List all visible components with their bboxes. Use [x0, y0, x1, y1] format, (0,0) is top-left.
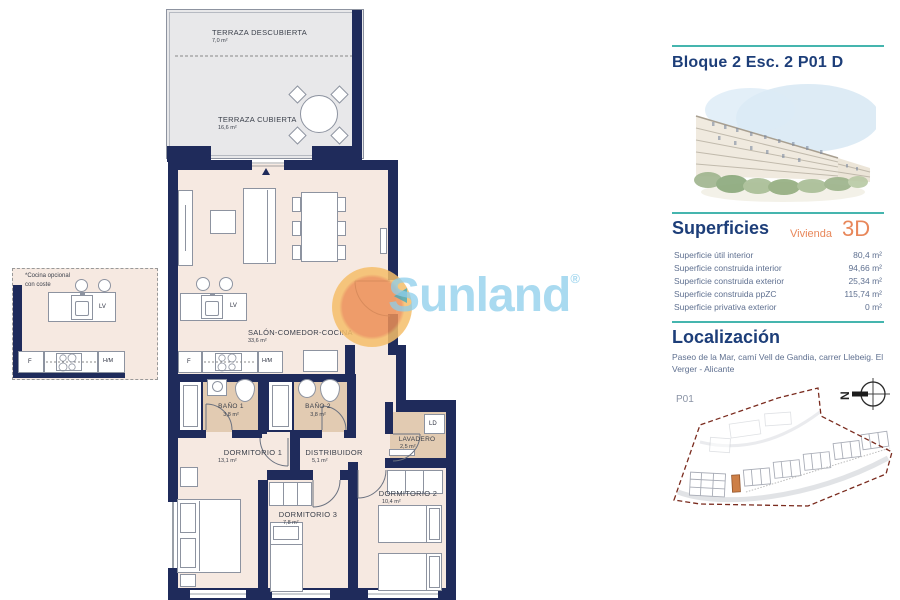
room-label-dormitorio3: DORMITORIO 3 [279, 511, 337, 519]
room-label-lavadero: LAVADERO [399, 437, 436, 444]
superficie-value: 94,66 m² [848, 263, 882, 273]
area-label-bano2: 3,8 m² [310, 413, 326, 419]
address-text: Paseo de la Mar, camí Vell de Gandia, ca… [672, 352, 884, 376]
superficie-row: Superficie privativa exterior 0 m² [674, 302, 882, 312]
highlighted-unit [732, 475, 741, 492]
superficie-label: Superficie útil interior [674, 250, 753, 260]
superficie-row: Superficie construida ppZC 115,74 m² [674, 289, 882, 299]
area-label-dormitorio3: 7,8 m² [283, 521, 299, 527]
building-illustration [688, 80, 876, 208]
unit-type-label: 3D [842, 216, 870, 242]
superficie-label: Superficie construida exterior [674, 276, 784, 286]
area-label-distribuidor: 5,1 m² [312, 459, 328, 465]
localizacion-heading: Localización [672, 327, 780, 348]
room-label-bano1: BAÑO 1 [218, 404, 244, 411]
watermark-brand: Sunland® [388, 272, 579, 320]
room-label-dormitorio1: DORMITORIO 1 [224, 449, 282, 457]
room-label-terraza-descubierta: TERRAZA DESCUBIERTA [212, 29, 307, 37]
room-label-terraza-cubierta: TERRAZA CUBIERTA [218, 116, 297, 124]
brochure-page: LV F H/M LD [0, 0, 900, 600]
superficie-row: Superficie construida interior 94,66 m² [674, 263, 882, 273]
superficie-value: 25,34 m² [848, 276, 882, 286]
area-label-dormitorio1: 13,1 m² [218, 459, 237, 465]
divider [672, 321, 884, 323]
superficie-row: Superficie útil interior 80,4 m² [674, 250, 882, 260]
area-label-bano1: 3,8 m² [223, 413, 239, 419]
superficie-label: Superficie construida interior [674, 263, 782, 273]
area-label-lavadero: 2,5 m² [400, 445, 416, 451]
superficie-label: Superficie construida ppZC [674, 289, 777, 299]
divider [672, 212, 884, 214]
site-plan [660, 380, 900, 535]
vivienda-label: Vivienda [790, 228, 832, 240]
superficie-label: Superficie privativa exterior [674, 302, 777, 312]
area-label-terraza-cubierta: 16,6 m² [218, 126, 237, 132]
registered-mark: ® [570, 271, 579, 286]
area-label-salon: 33,6 m² [248, 339, 267, 345]
area-label-terraza-descubierta: 7,0 m² [212, 39, 228, 45]
superficie-row: Superficie construida exterior 25,34 m² [674, 276, 882, 286]
superficie-value: 115,74 m² [844, 289, 882, 299]
area-label-dormitorio2: 10,4 m² [382, 500, 401, 506]
room-label-dormitorio2: DORMITORIO 2 [379, 490, 437, 498]
unit-title: Bloque 2 Esc. 2 P01 D [672, 54, 843, 72]
superficies-heading: Superficies [672, 218, 769, 239]
room-label-salon: SALÓN-COMEDOR-COCINA [248, 329, 353, 337]
room-label-bano2: BAÑO 2 [305, 404, 331, 411]
room-label-distribuidor: DISTRIBUIDOR [305, 449, 362, 457]
superficie-value: 0 m² [865, 302, 882, 312]
divider [672, 45, 884, 47]
superficie-value: 80,4 m² [853, 250, 882, 260]
balcony-door-marker [262, 168, 270, 175]
